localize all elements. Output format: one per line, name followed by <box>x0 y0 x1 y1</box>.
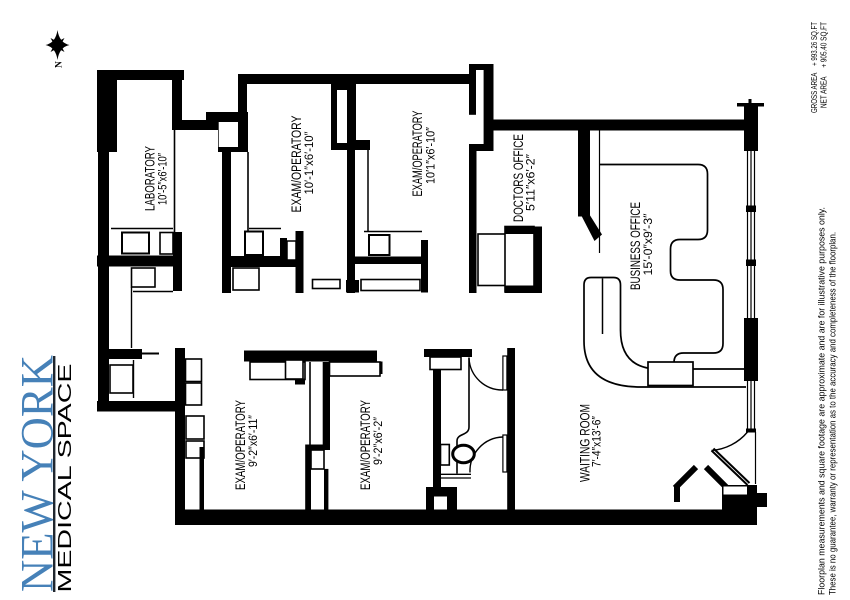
svg-text:EXAM/OPERATORY: EXAM/OPERATORY <box>289 116 304 213</box>
svg-text:5′11″x6′-2″: 5′11″x6′-2″ <box>526 154 538 211</box>
svg-text:10′-5″x6′-10″: 10′-5″x6′-10″ <box>158 153 170 205</box>
svg-text:NET AREA + 905.40 SQ.FT: NET AREA + 905.40 SQ.FT <box>820 22 829 108</box>
svg-text:WAITING ROOM: WAITING ROOM <box>578 404 593 482</box>
svg-text:DOCTORS OFFICE: DOCTORS OFFICE <box>511 134 526 222</box>
svg-text:N: N <box>55 61 65 68</box>
svg-text:9′-2″x6′-2″: 9′-2″x6′-2″ <box>373 417 385 465</box>
svg-text:EXAM/OPERATORY: EXAM/OPERATORY <box>358 400 373 490</box>
svg-text:GROSS AREA + 993.26 SQ.FT: GROSS AREA + 993.26 SQ.FT <box>810 22 819 113</box>
svg-text:7′-4″x13′-6″: 7′-4″x13′-6″ <box>592 416 604 467</box>
svg-text:LABORATORY: LABORATORY <box>143 146 158 211</box>
svg-text:EXAM/OPERATORY: EXAM/OPERATORY <box>410 111 425 197</box>
svg-text:10′-1″x6′-10″: 10′-1″x6′-10″ <box>304 132 316 195</box>
svg-text:9′-2″x6′-11″: 9′-2″x6′-11″ <box>248 415 260 467</box>
svg-text:BUSINESS OFFICE: BUSINESS OFFICE <box>628 202 643 290</box>
svg-text:15′-0″x9′-3″: 15′-0″x9′-3″ <box>643 214 655 276</box>
svg-text:MEDICAL SPACE: MEDICAL SPACE <box>54 364 75 593</box>
svg-text:EXAM/OPERATORY: EXAM/OPERATORY <box>233 400 248 490</box>
svg-text:These is no guarantee, warrant: These is no guarantee, warranty or repre… <box>828 232 838 595</box>
svg-text:10′1″x6′-10″: 10′1″x6′-10″ <box>426 127 438 184</box>
svg-text:Floorplan measurements and squ: Floorplan measurements and square footag… <box>817 207 827 595</box>
